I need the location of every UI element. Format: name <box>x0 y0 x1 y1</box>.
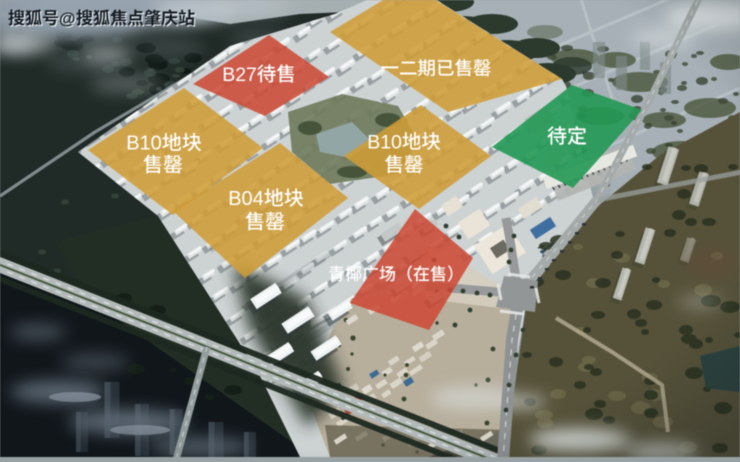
svg-text:B10: B10 <box>367 131 402 153</box>
svg-text:B10: B10 <box>126 133 162 155</box>
svg-text:B04: B04 <box>228 188 264 210</box>
svg-text:@: @ <box>59 9 76 28</box>
svg-text:B27: B27 <box>222 64 257 86</box>
